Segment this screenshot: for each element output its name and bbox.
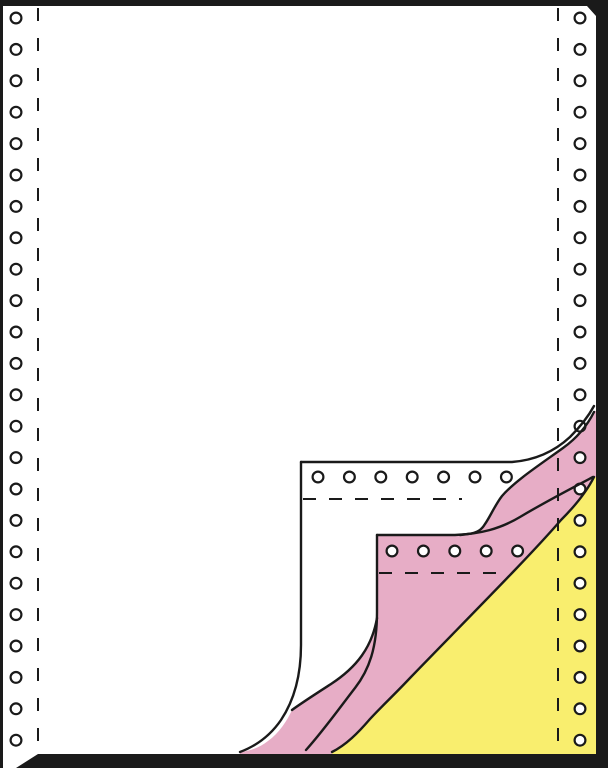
- continuous-paper-illustration: [0, 0, 608, 768]
- sprocket-hole: [407, 472, 418, 483]
- sprocket-hole: [575, 358, 586, 369]
- sprocket-hole: [575, 703, 586, 714]
- sprocket-hole: [313, 472, 324, 483]
- sprocket-hole: [575, 641, 586, 652]
- sprocket-hole: [11, 641, 22, 652]
- sprocket-hole: [11, 358, 22, 369]
- sprocket-hole: [11, 13, 22, 24]
- sprocket-hole: [11, 201, 22, 212]
- sprocket-hole: [575, 295, 586, 306]
- sprocket-hole: [575, 232, 586, 243]
- sprocket-hole: [575, 389, 586, 400]
- sprocket-hole: [11, 107, 22, 118]
- sprocket-hole: [575, 44, 586, 55]
- sprocket-hole: [575, 138, 586, 149]
- sprocket-hole: [575, 13, 586, 24]
- sprocket-hole: [575, 201, 586, 212]
- sprocket-hole: [11, 672, 22, 683]
- sprocket-hole: [575, 546, 586, 557]
- sprocket-hole: [11, 484, 22, 495]
- sprocket-hole: [575, 672, 586, 683]
- sprocket-hole: [11, 44, 22, 55]
- sprocket-hole: [575, 327, 586, 338]
- sprocket-hole: [375, 472, 386, 483]
- sprocket-hole: [449, 546, 460, 557]
- sprocket-hole: [512, 546, 523, 557]
- sprocket-hole: [575, 515, 586, 526]
- sprocket-hole: [11, 578, 22, 589]
- sprocket-hole: [481, 546, 492, 557]
- sprocket-hole: [11, 735, 22, 746]
- sprocket-hole: [438, 472, 449, 483]
- sprocket-hole: [470, 472, 481, 483]
- sprocket-hole: [11, 138, 22, 149]
- sprocket-hole: [11, 75, 22, 86]
- sprocket-hole: [418, 546, 429, 557]
- sprocket-hole: [11, 452, 22, 463]
- sprocket-hole: [575, 107, 586, 118]
- sprocket-hole: [11, 232, 22, 243]
- sprocket-hole: [11, 389, 22, 400]
- sprocket-hole: [575, 609, 586, 620]
- sprocket-hole: [11, 170, 22, 181]
- sprocket-hole: [11, 421, 22, 432]
- sprocket-hole: [575, 452, 586, 463]
- sprocket-hole: [11, 327, 22, 338]
- product-image-continuous-paper: [0, 0, 608, 768]
- sprocket-hole: [11, 515, 22, 526]
- sprocket-hole: [11, 295, 22, 306]
- sprocket-hole: [575, 264, 586, 275]
- sprocket-hole: [575, 75, 586, 86]
- sprocket-hole: [575, 170, 586, 181]
- sprocket-hole: [575, 578, 586, 589]
- sprocket-hole: [11, 546, 22, 557]
- sprocket-hole: [575, 735, 586, 746]
- sprocket-hole: [11, 264, 22, 275]
- sprocket-hole: [387, 546, 398, 557]
- sprocket-hole: [344, 472, 355, 483]
- sprocket-hole: [11, 609, 22, 620]
- sprocket-hole: [501, 472, 512, 483]
- sprocket-hole: [11, 703, 22, 714]
